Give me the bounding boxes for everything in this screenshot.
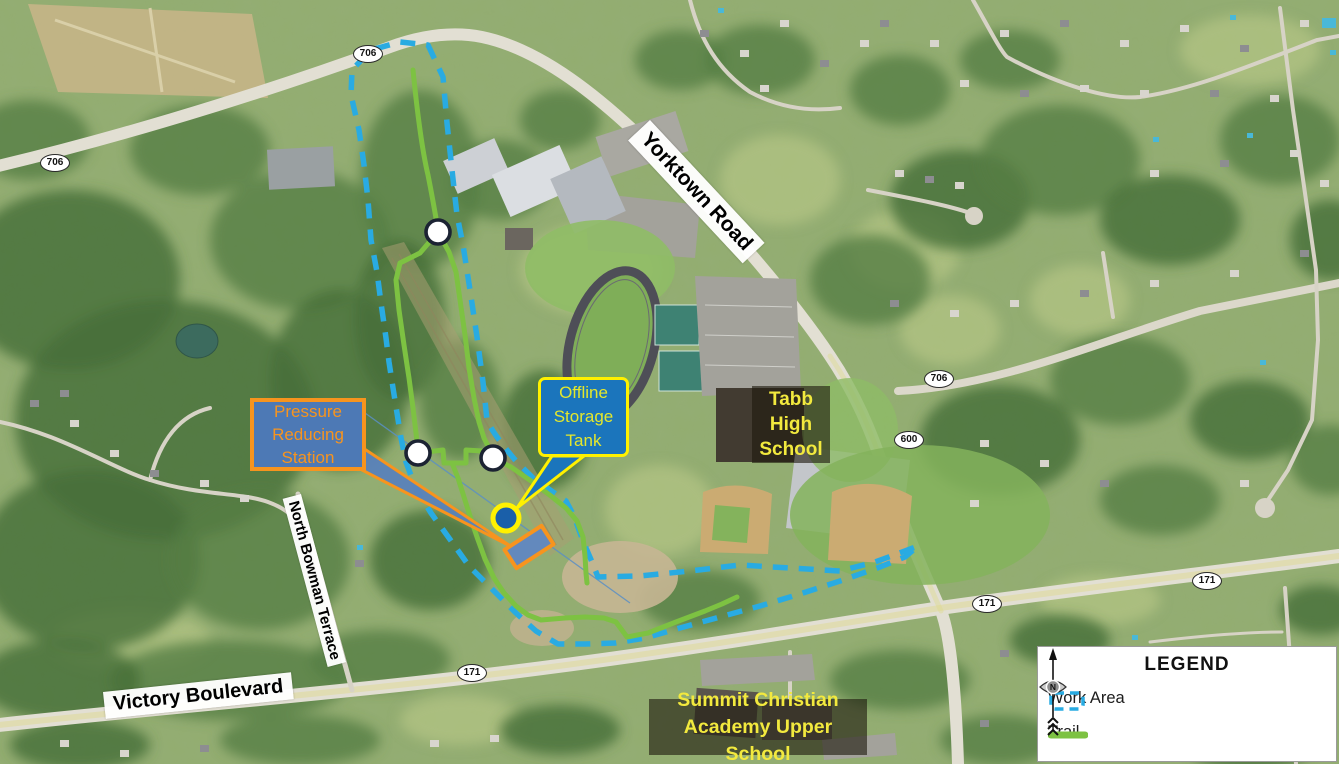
legend: LEGEND Work Area Trail N	[1037, 646, 1337, 762]
summit-christian-label: Summit Christian Academy Upper School	[649, 699, 867, 755]
trail-junction-markers	[406, 220, 505, 470]
trail-path	[396, 70, 737, 637]
trail-junction-marker	[481, 446, 505, 470]
tabb-high-school-label: Tabb High School	[752, 386, 830, 463]
pressure-reducing-station-callout: Pressure Reducing Station	[250, 398, 366, 471]
route-shield-171: 171	[1192, 572, 1222, 590]
legend-title: LEGEND	[1038, 654, 1336, 676]
site-map: Yorktown Road Victory Boulevard North Bo…	[0, 0, 1339, 764]
storage-tank-marker	[493, 505, 519, 531]
route-shield-600: 600	[894, 431, 924, 449]
route-shield-706: 706	[353, 45, 383, 63]
compass-north-letter: N	[1050, 682, 1056, 692]
trail-junction-marker	[406, 441, 430, 465]
work-area-outline	[351, 42, 918, 644]
route-shield-171: 171	[972, 595, 1002, 613]
tank-callout-tail	[517, 456, 584, 508]
trail-junction-marker	[426, 220, 450, 244]
route-shield-171: 171	[457, 664, 487, 682]
route-shield-706: 706	[40, 154, 70, 172]
offline-storage-tank-callout: Offline Storage Tank	[538, 377, 629, 457]
compass-rose-icon: N	[1038, 647, 1068, 743]
route-shield-706: 706	[924, 370, 954, 388]
